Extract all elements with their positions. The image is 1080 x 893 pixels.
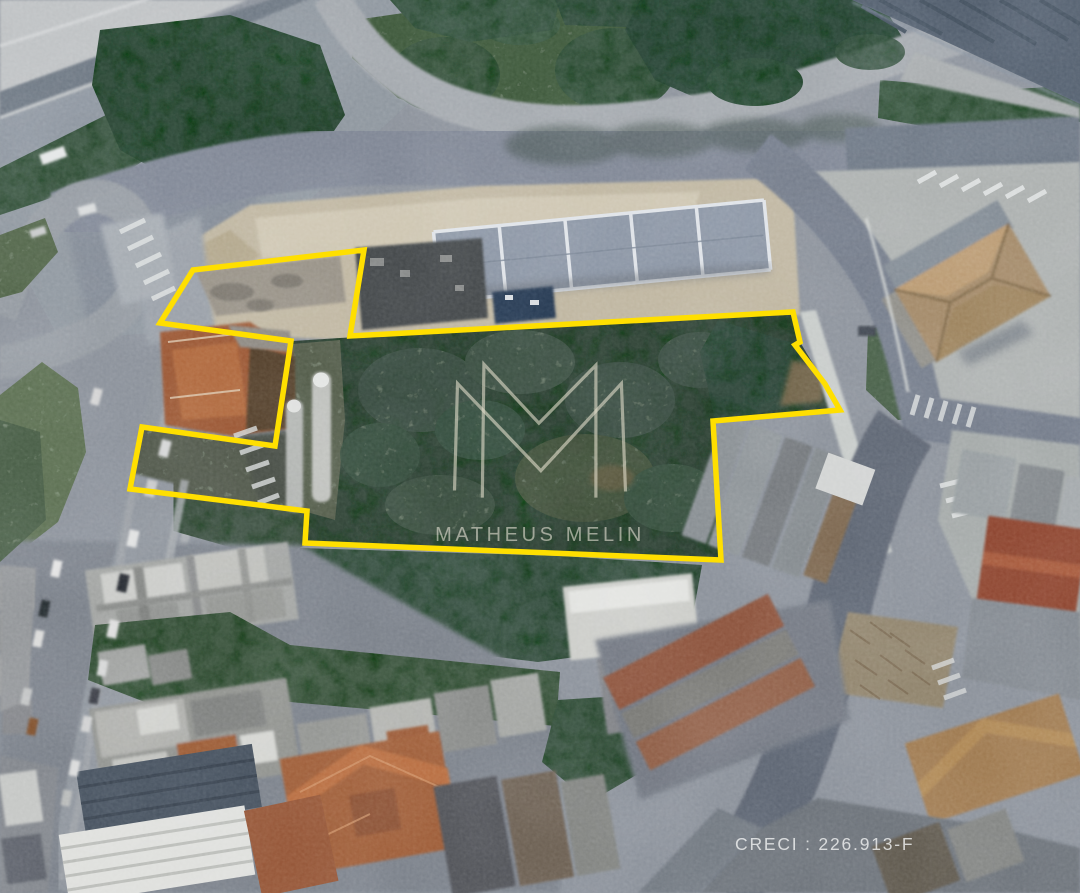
svg-text:MATHEUS MELIN: MATHEUS MELIN xyxy=(435,524,645,546)
svg-text:CRECI : 226.913-F: CRECI : 226.913-F xyxy=(735,834,914,854)
